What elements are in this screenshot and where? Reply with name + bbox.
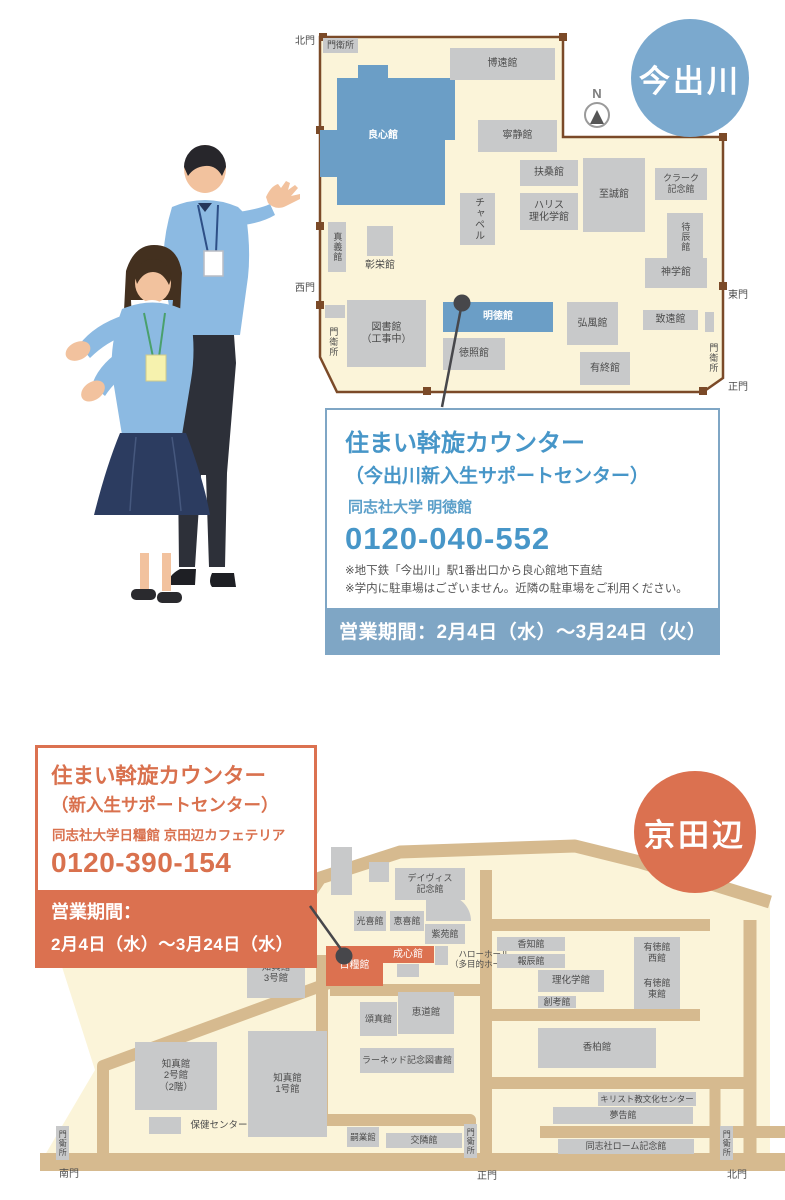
map-building: 致遠館	[643, 310, 698, 330]
map-building: 夢告館	[553, 1107, 693, 1124]
period-dates: 2月4日（水）～3月24日（水）	[51, 930, 301, 955]
map-building: 香柏館	[538, 1028, 656, 1068]
map-building-unlabeled	[367, 226, 393, 256]
map-building: 紫苑館	[425, 924, 465, 944]
map-building-unlabeled	[149, 1117, 181, 1134]
map-building: 知真館 1号館	[248, 1031, 327, 1137]
map-building-unlabeled	[705, 312, 714, 332]
map-building: 明徳館	[443, 302, 553, 332]
map-building: 光喜館	[354, 911, 386, 931]
map-building: 正門	[472, 1171, 502, 1183]
map-building: 門衛所	[56, 1126, 69, 1160]
map-building: 門衛所	[323, 38, 358, 53]
map-building: 恵道館	[398, 992, 454, 1034]
map-building: 門衛所	[720, 1126, 733, 1160]
kyotanabe-info-box: 住まい斡旋カウンター （新入生サポートセンター） 同志社大学日糧館 京田辺カフェ…	[35, 745, 317, 968]
map-building: 有終館	[580, 352, 630, 385]
map-building: 日糧館	[326, 946, 383, 986]
business-period-bar: 営業期間：2月4日（水）～3月24日（火）	[327, 608, 718, 653]
map-building: チャペル	[460, 193, 495, 245]
map-building: ハリス 理化学館	[520, 193, 578, 230]
map-building: 東門	[726, 290, 750, 302]
kyotanabe-circle-label: 京田辺	[644, 810, 746, 855]
map-building: 正門	[726, 382, 750, 394]
map-building: 保健センター	[181, 1120, 257, 1132]
map-building: 門衛所	[464, 1124, 477, 1158]
map-building: 図書館 （工事中）	[347, 300, 426, 367]
map-building: クラーク 記念館	[655, 168, 707, 200]
map-building-unlabeled	[397, 964, 419, 977]
map-building: 恵喜館	[390, 911, 424, 931]
map-building: 創考館	[538, 996, 576, 1008]
imadegawa-circle-label: 今出川	[639, 56, 741, 101]
map-building: 彰栄館	[359, 260, 401, 272]
counter-title: 住まい斡旋カウンター	[345, 423, 700, 458]
counter-subtitle: （今出川新入生サポートセンター）	[345, 461, 700, 488]
map-building-unlabeled	[331, 847, 352, 895]
map-building: 報辰館	[497, 954, 565, 968]
map-building: 良心館	[353, 128, 413, 144]
map-building: 成心館	[382, 946, 434, 963]
map-building: 北門	[722, 1170, 752, 1182]
business-period-bar: 営業期間： 2月4日（水）～3月24日（水）	[38, 890, 314, 965]
counter-title: 住まい斡旋カウンター	[51, 759, 301, 790]
map-building: 弘風館	[567, 302, 618, 345]
map-building: 香知館	[497, 937, 565, 951]
map-building: 待辰館	[667, 213, 703, 260]
map-building: 有徳館 西館	[634, 941, 680, 965]
kyotanabe-circle-badge: 京田辺	[634, 771, 756, 893]
map-building: 知真館 2号館 （2階）	[135, 1042, 217, 1110]
map-building: キリスト教文化センター	[598, 1092, 696, 1106]
counter-phone: 0120-040-552	[345, 521, 700, 557]
compass-n-label: N	[583, 86, 611, 101]
map-building: 同志社ローム記念館	[558, 1139, 694, 1154]
students-photo	[60, 125, 340, 625]
compass-dial-icon	[584, 102, 610, 128]
map-building: 扶桑館	[520, 160, 578, 186]
imadegawa-circle-badge: 今出川	[631, 19, 749, 137]
map-building: 神学館	[645, 258, 707, 288]
map-building: 南門	[54, 1169, 84, 1181]
map-building: 理化学館	[538, 970, 604, 992]
counter-subtitle: （新入生サポートセンター）	[51, 792, 301, 817]
counter-location: 同志社大学日糧館 京田辺カフェテリア	[52, 824, 301, 844]
counter-phone: 0120-390-154	[51, 847, 301, 879]
map-building: 有徳館 東館	[634, 977, 680, 1001]
map-building: 北門	[293, 36, 317, 48]
map-building: 至誠館	[583, 158, 645, 232]
counter-note-2: ※学内に駐車場はございません。近隣の駐車場をご利用ください。	[345, 581, 700, 599]
map-building: 博遠館	[450, 48, 555, 80]
map-building: 交隣館	[386, 1133, 462, 1148]
compass: N	[583, 86, 611, 128]
period-label: 営業期間：	[51, 898, 301, 924]
map-building: 門衛所	[707, 336, 719, 380]
map-building: ラーネッド記念図書館	[360, 1048, 454, 1073]
imadegawa-info-box: 住まい斡旋カウンター （今出川新入生サポートセンター） 同志社大学 明徳館 01…	[325, 408, 720, 655]
counter-note-1: ※地下鉄「今出川」駅1番出口から良心館地下直結	[345, 563, 700, 581]
counter-location: 同志社大学 明徳館	[348, 496, 700, 517]
map-building: 寧静館	[478, 120, 557, 152]
map-building: 頌真館	[360, 1002, 397, 1036]
map-building: 嗣業館	[347, 1127, 379, 1147]
map-building-unlabeled	[369, 862, 389, 882]
map-building: 徳照館	[443, 338, 505, 370]
